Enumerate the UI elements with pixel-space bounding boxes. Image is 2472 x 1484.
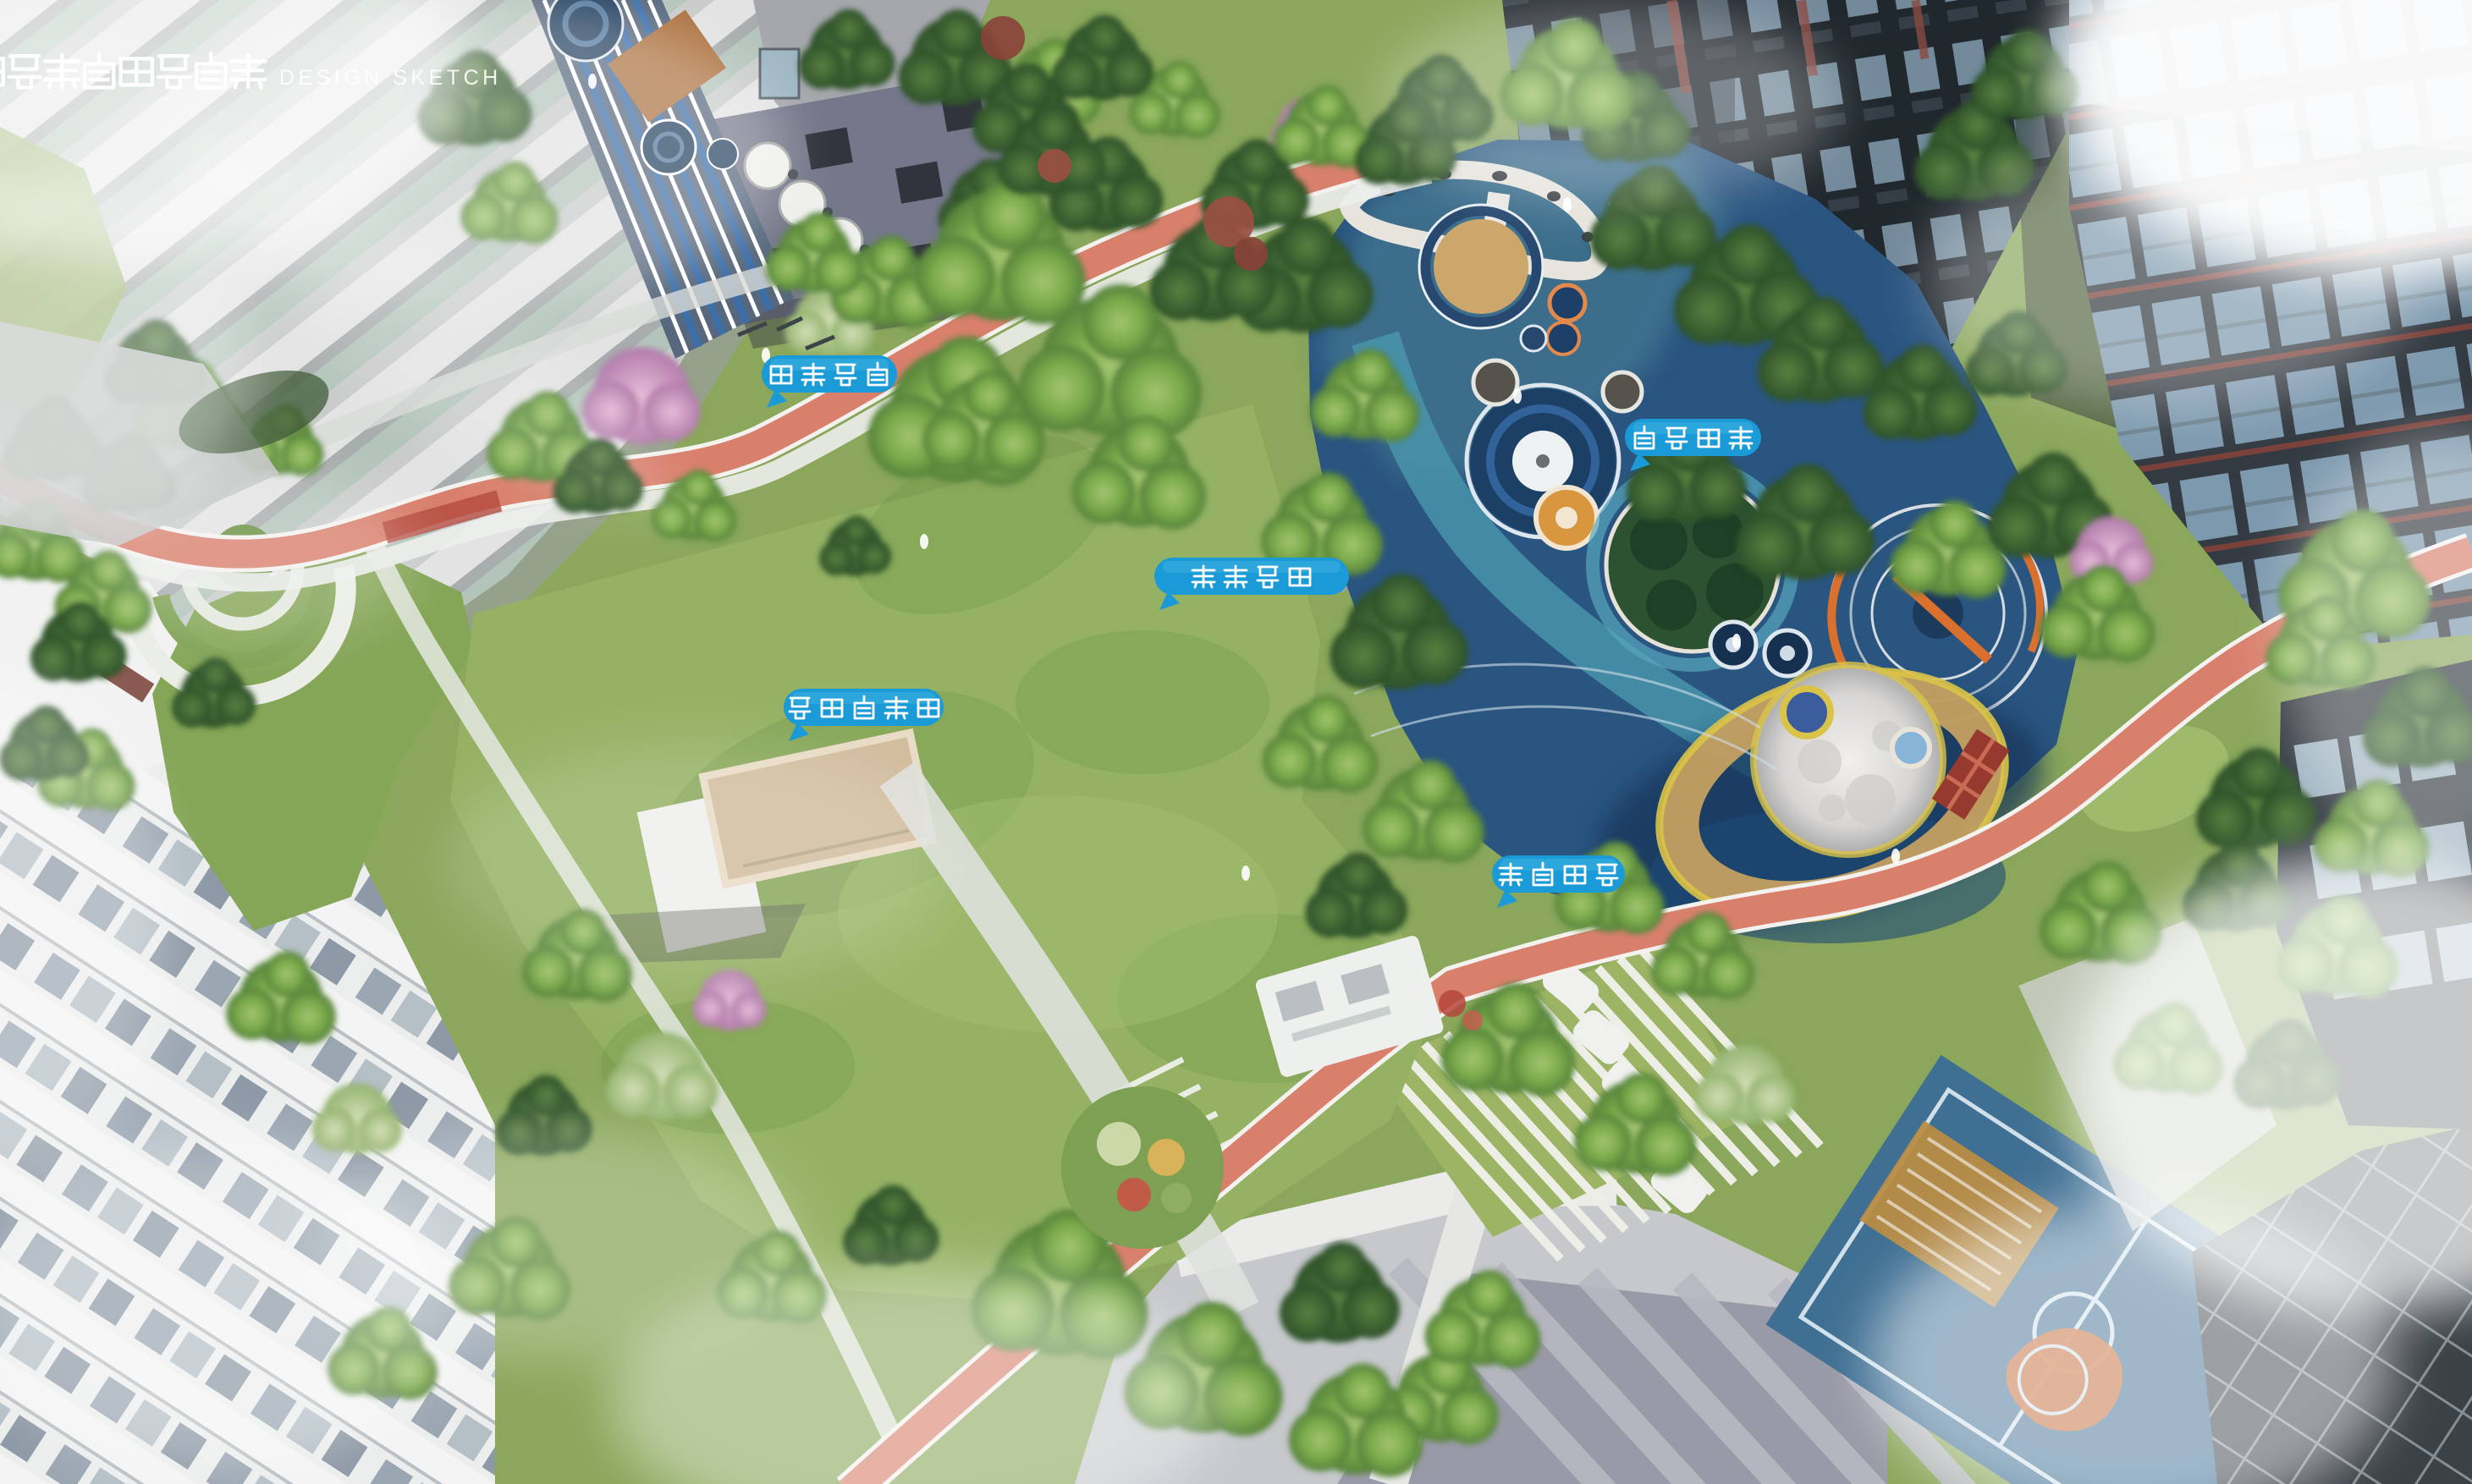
svg-text:DESIGN SKETCH: DESIGN SKETCH: [279, 66, 502, 90]
